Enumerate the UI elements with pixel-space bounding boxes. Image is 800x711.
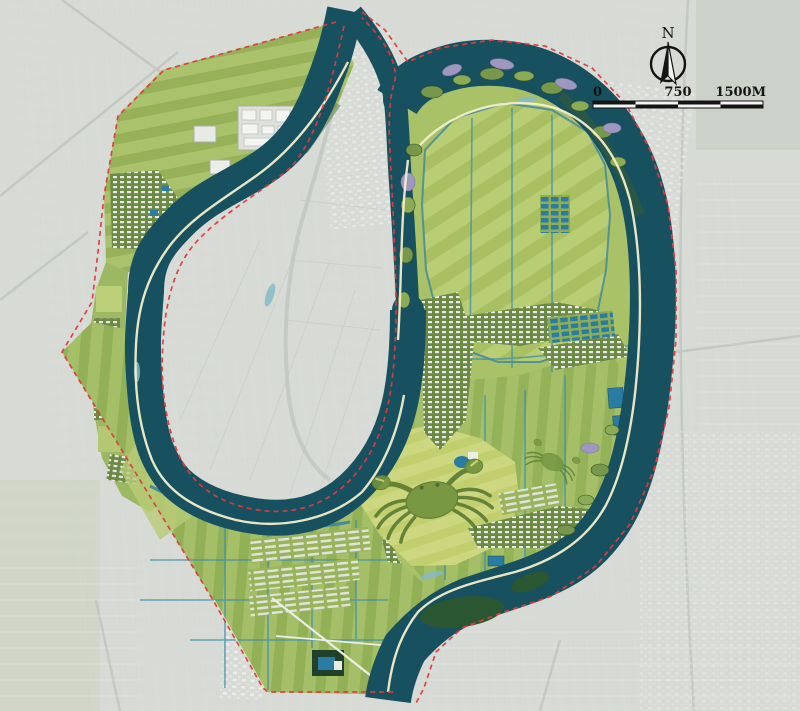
building [468,452,478,459]
field-texture-south [430,625,800,711]
field-plot [96,286,122,312]
pond [150,210,158,216]
field-texture-east [700,180,800,440]
masterplan-map: N 0 750 1500M [0,0,800,711]
pond-grid [540,195,570,233]
pond [162,186,169,191]
dark-pond-feature [312,650,344,676]
scale-label-0: 0 [593,85,602,100]
scale-label-1500: 1500M [715,85,766,100]
river-junction [383,86,411,114]
compass-label: N [661,24,674,42]
tinted-fields-ne [696,0,800,150]
scale-bar-segments [593,101,763,108]
field-texture-sw [0,560,140,711]
scale-label-750: 750 [664,85,691,100]
